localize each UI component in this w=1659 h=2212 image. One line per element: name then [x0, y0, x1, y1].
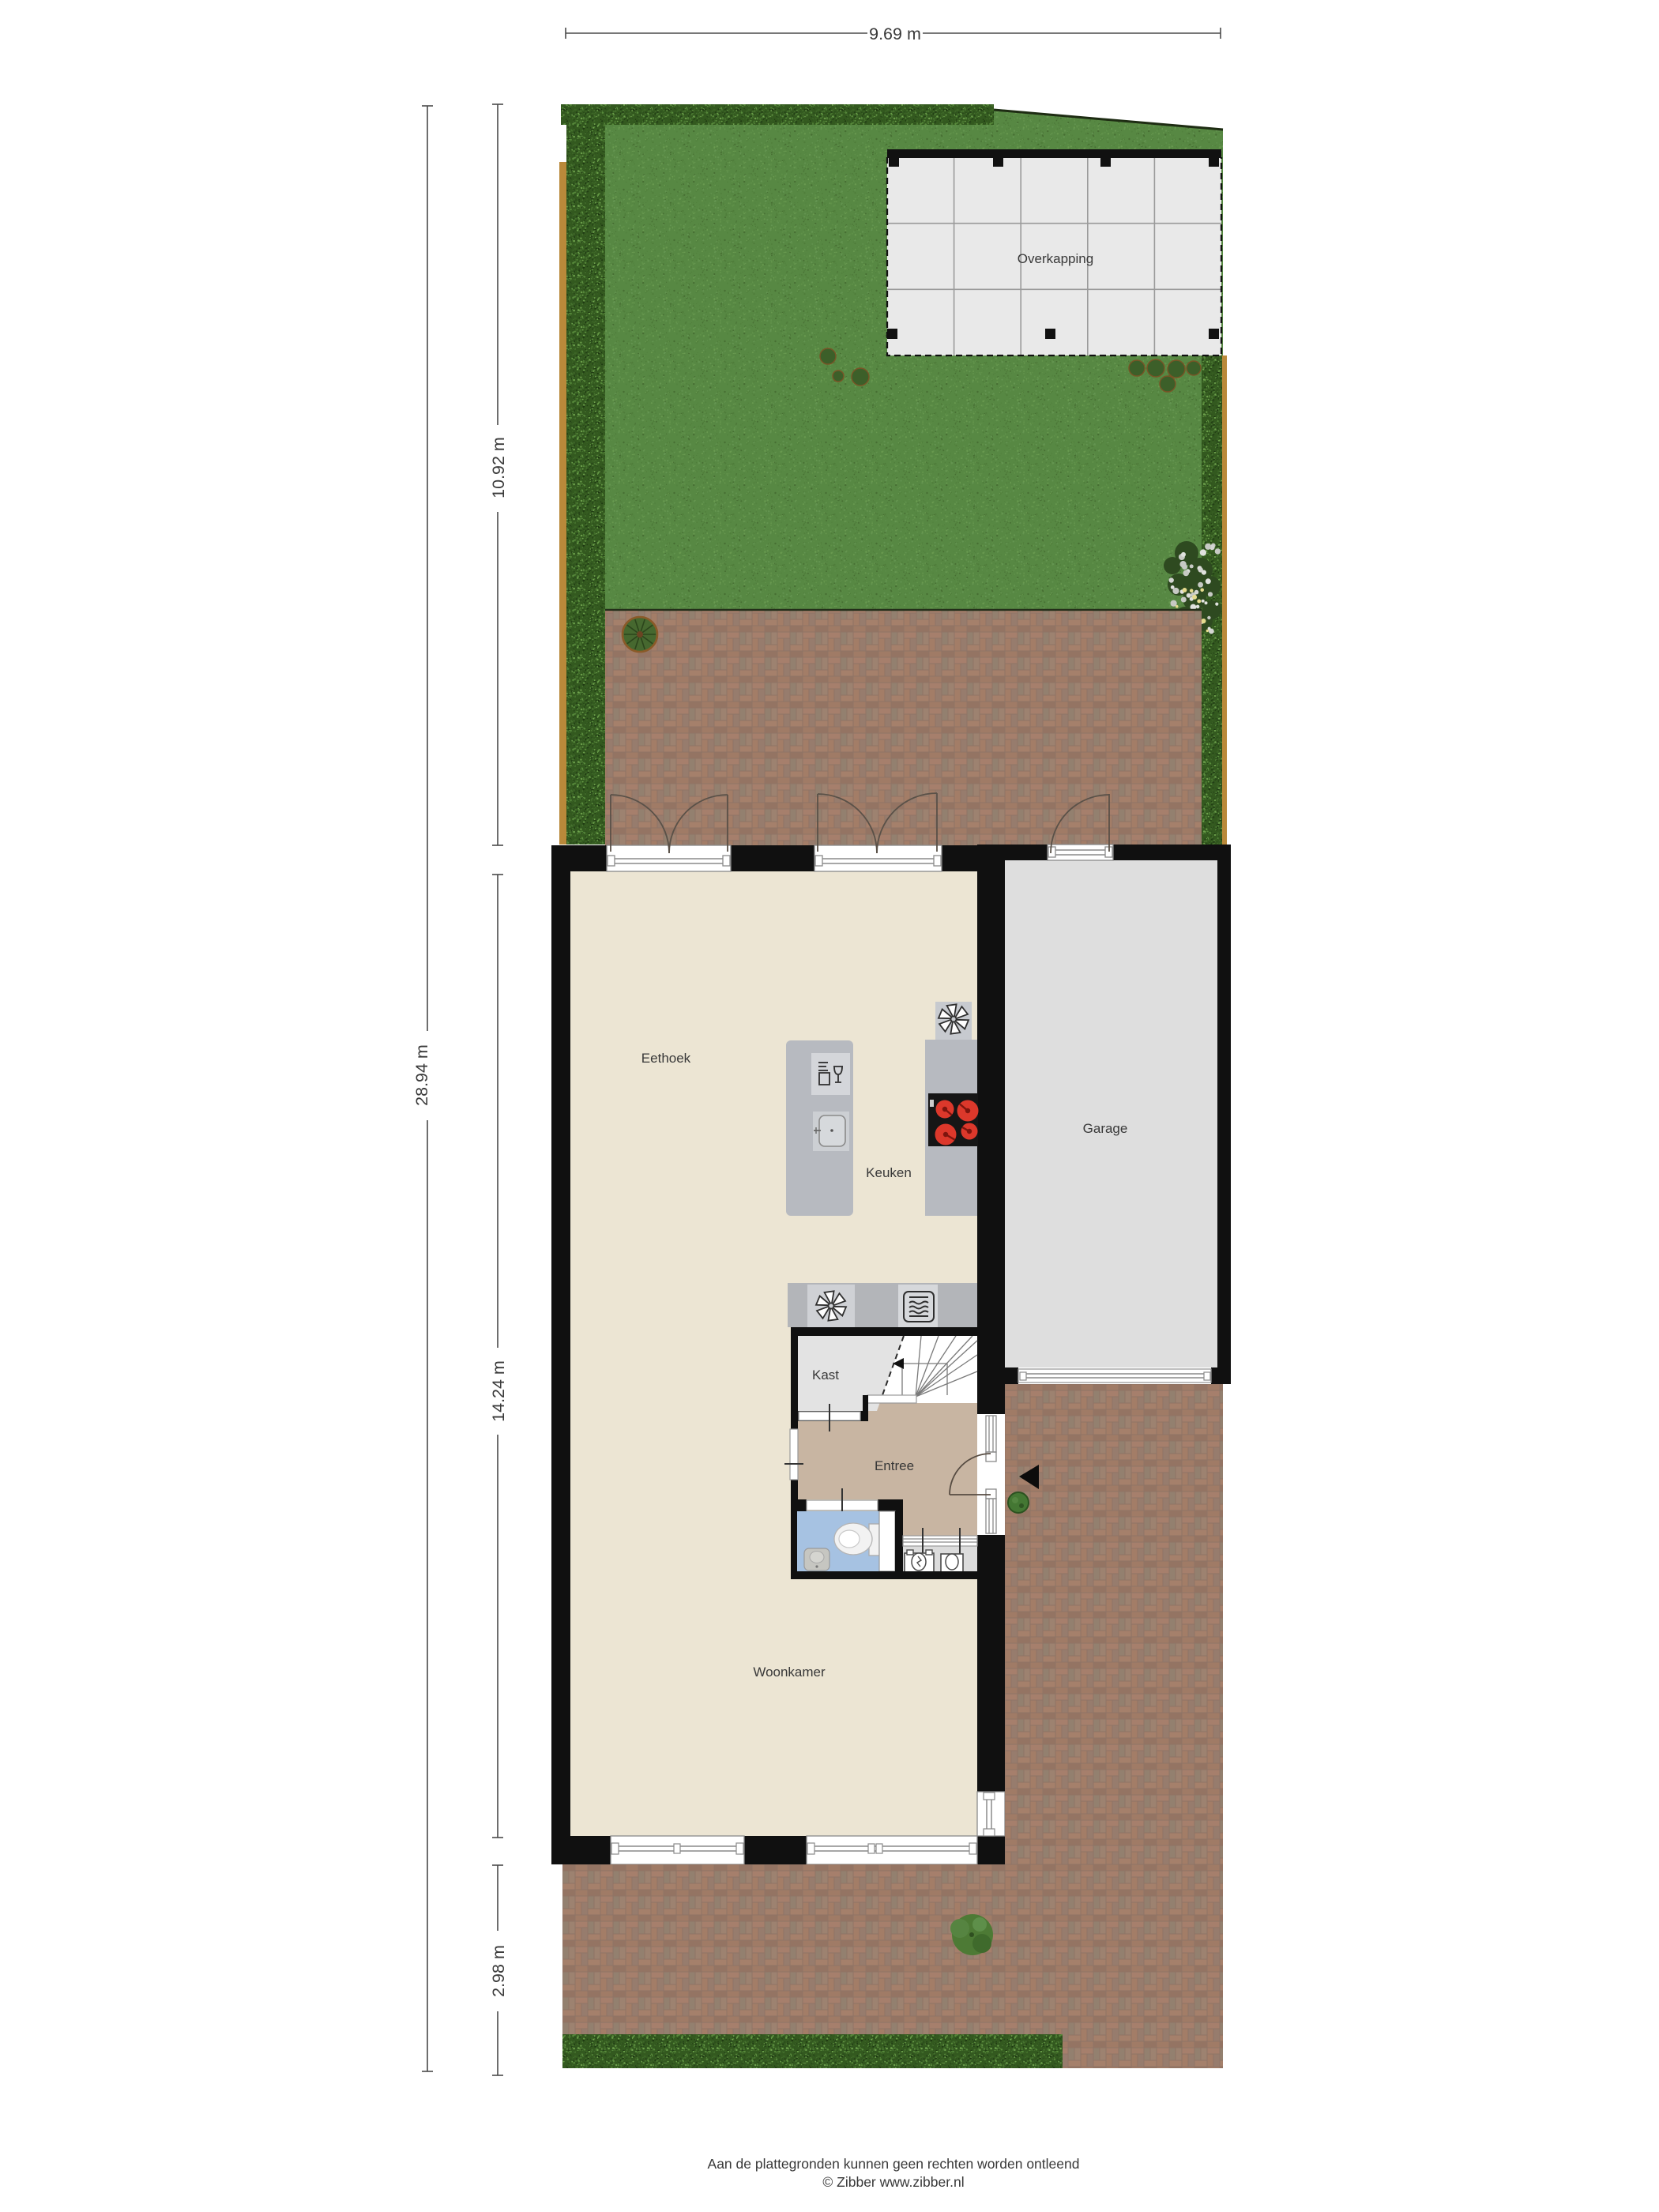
svg-text:© Zibber www.zibber.nl: © Zibber www.zibber.nl — [822, 2174, 964, 2190]
svg-text:2.98 m: 2.98 m — [489, 1945, 508, 1997]
svg-text:Kast: Kast — [812, 1367, 839, 1382]
svg-text:14.24 m: 14.24 m — [489, 1360, 508, 1422]
svg-text:Aan de plattegronden kunnen ge: Aan de plattegronden kunnen geen rechten… — [708, 2156, 1080, 2172]
svg-text:Eethoek: Eethoek — [641, 1051, 691, 1066]
svg-text:28.94 m: 28.94 m — [412, 1044, 431, 1106]
svg-text:Keuken: Keuken — [866, 1165, 912, 1180]
svg-text:Entree: Entree — [875, 1458, 914, 1473]
svg-text:Garage: Garage — [1083, 1121, 1128, 1136]
svg-text:9.69 m: 9.69 m — [869, 24, 921, 43]
svg-text:10.92 m: 10.92 m — [489, 437, 508, 498]
svg-text:Overkapping: Overkapping — [1018, 251, 1093, 266]
svg-text:Woonkamer: Woonkamer — [753, 1665, 826, 1680]
